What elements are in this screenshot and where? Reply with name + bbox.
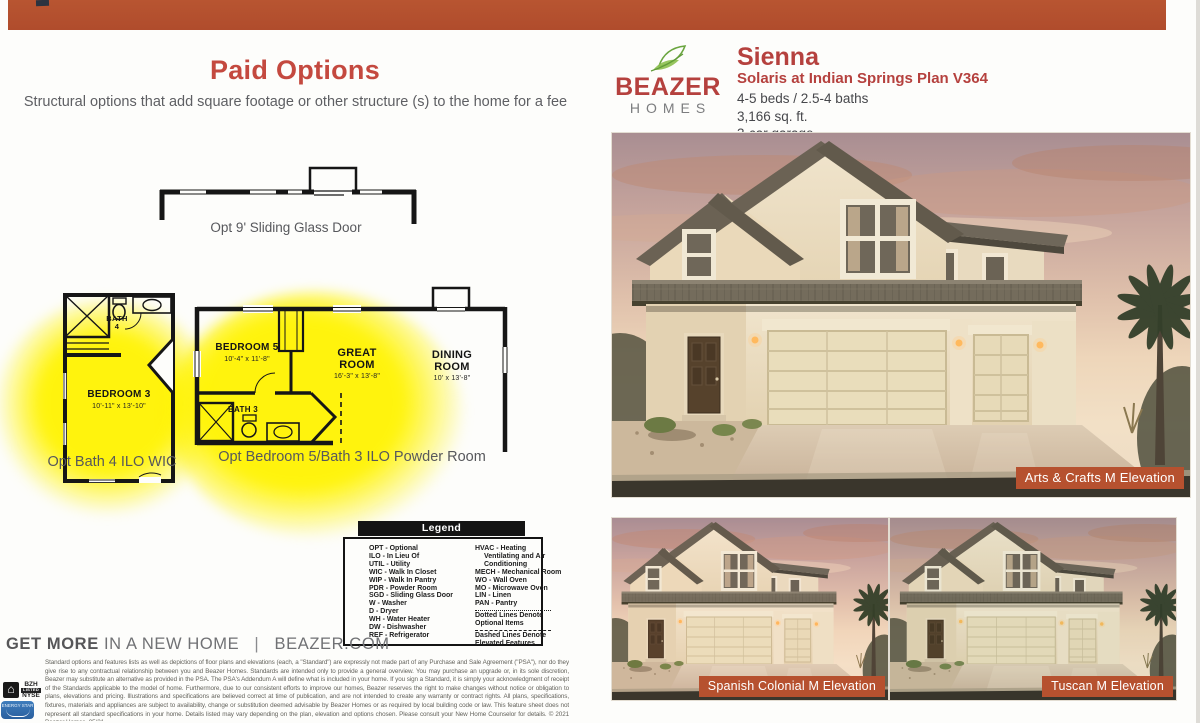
tagline-bold: GET MORE — [6, 635, 99, 653]
room-label-great-room: GREAT ROOM 16'-3" x 13'-8" — [334, 348, 380, 380]
room-label-bedroom3: BEDROOM 3 10'-11" x 13'-10" — [87, 390, 150, 410]
room-label-bath4: BATH 4 — [106, 315, 127, 331]
room-label-bath3: BATH 3 — [228, 406, 258, 414]
bath4-option-caption: Opt Bath 4 ILO WIC — [48, 454, 177, 470]
legend-box: OPT - OptionalILO - In Lieu Of UTIL - Ut… — [343, 537, 543, 646]
legend-dashed-note: Dashed Lines Denote Elevated Features — [475, 632, 563, 648]
tagline-divider: | — [254, 635, 259, 653]
legend-dotted-note: Dotted Lines Denote Optional Items — [475, 612, 563, 628]
equal-housing-icon: ⌂ — [3, 682, 19, 698]
top-accent-bar — [8, 0, 1166, 30]
legend-left-column: OPT - OptionalILO - In Lieu Of UTIL - Ut… — [369, 545, 469, 640]
legend-title: Legend — [358, 521, 525, 536]
elevation-badge: Arts & Crafts M Elevation — [1016, 467, 1184, 489]
nyse-ticker-logo: BZH LISTED NYSE — [21, 682, 41, 699]
page-title: Paid Options — [30, 55, 560, 86]
dotted-line-sample — [475, 610, 551, 611]
brand-name: BEAZER — [608, 74, 728, 100]
legal-disclaimer: Standard options and features lists as w… — [45, 659, 569, 721]
beazer-leaf-icon — [645, 44, 691, 72]
page-subtitle: Structural options that add square foota… — [8, 94, 583, 110]
dashed-line-sample — [475, 630, 551, 631]
sgd-option-caption: Opt 9' Sliding Glass Door — [210, 220, 361, 235]
house-rendering — [890, 518, 1176, 700]
plan-name: Sienna — [737, 44, 1167, 70]
floorplan-sgd-option — [158, 164, 418, 226]
room-label-bedroom5: BEDROOM 5 10'-4" x 11'-8" — [215, 343, 278, 363]
energy-star-icon: ENERGY STAR — [1, 701, 34, 719]
room-label-dining-room: DINING ROOM 10' x 13'-8" — [432, 350, 472, 382]
brand-sub: HOMES — [613, 100, 728, 116]
scan-artifact — [36, 0, 49, 6]
plan-info-block: Sienna Solaris at Indian Springs Plan V3… — [737, 44, 1167, 143]
plan-beds-baths: 4-5 beds / 2.5-4 baths — [737, 90, 1167, 108]
house-rendering — [612, 133, 1190, 497]
elevation-photo-spanish-colonial: Spanish Colonial M Elevation — [612, 518, 888, 700]
tagline-rest: IN A NEW HOME — [104, 635, 239, 653]
beazer-logo: BEAZER HOMES — [608, 44, 728, 116]
scanned-flyer-page: Paid Options Structural options that add… — [0, 0, 1200, 723]
house-rendering — [612, 518, 888, 700]
plan-community: Solaris at Indian Springs Plan V364 — [737, 70, 1167, 88]
scan-edge — [1196, 0, 1200, 723]
legend-right-column: HVAC - Heating Ventilating and Air Condi… — [475, 545, 563, 648]
website-text: BEAZER.COM — [275, 635, 390, 653]
elevation-photo-tuscan: Tuscan M Elevation — [890, 518, 1176, 700]
elevation-badge: Spanish Colonial M Elevation — [699, 676, 885, 697]
elevation-badge: Tuscan M Elevation — [1042, 676, 1173, 697]
plan-area: 3,166 sq. ft. — [737, 108, 1167, 126]
footer-tagline: GET MORE IN A NEW HOME | BEAZER.COM — [6, 635, 390, 654]
elevation-photo-arts-crafts: Arts & Crafts M Elevation — [612, 133, 1190, 497]
bedroom5-option-caption: Opt Bedroom 5/Bath 3 ILO Powder Room — [218, 449, 486, 465]
